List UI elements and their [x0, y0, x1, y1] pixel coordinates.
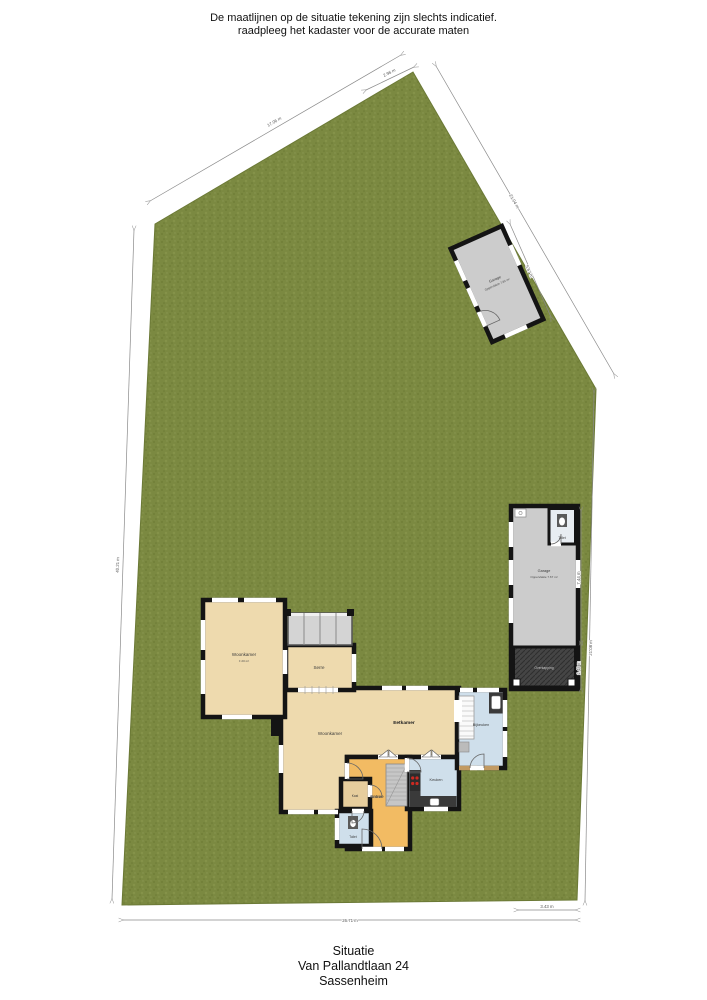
garage-right-window — [509, 560, 514, 585]
window — [503, 731, 508, 757]
stove-burner-icon — [411, 776, 414, 779]
door-opening — [345, 763, 350, 779]
serre-post — [284, 609, 291, 616]
window — [382, 686, 402, 691]
dim-garage2-side: 7.44 m — [576, 571, 581, 585]
woonkamer-label: Woonkamer — [318, 731, 343, 736]
window — [201, 660, 206, 694]
garage-right-label: Garage — [538, 569, 551, 573]
keuken-label: Keuken — [430, 778, 443, 782]
stove-burner-icon — [415, 776, 418, 779]
door-opening — [352, 809, 364, 814]
window — [406, 686, 428, 691]
dim-diag-full: 21.04 m — [508, 193, 520, 209]
window — [222, 715, 252, 720]
toilet-label: Toilet — [349, 835, 357, 839]
dim-top-left: 17.06 m — [266, 115, 282, 127]
dim-overkapping-side: 2.48 m — [576, 661, 581, 675]
kitchen-sink-icon — [430, 799, 439, 806]
dim-right-side: 21.08 m — [588, 640, 593, 656]
woonkamer-nw-sublabel: ± 20 m² — [239, 659, 249, 663]
window — [503, 700, 508, 727]
overkapping-post — [568, 679, 575, 686]
window — [385, 847, 404, 852]
window — [288, 810, 314, 815]
entree-label: Entree — [370, 794, 384, 799]
window — [460, 688, 473, 693]
window — [244, 598, 276, 603]
window — [279, 745, 284, 773]
dim-bottom: 26.71 m — [342, 918, 358, 923]
garage-right-window — [509, 598, 514, 623]
door-opening — [454, 700, 462, 722]
garage-right-sublabel: Oppervlakte 7.67 m² — [530, 575, 557, 579]
dim-left-side: 40.21 m — [115, 557, 121, 573]
garage-toilet-bowl-icon — [559, 518, 565, 526]
title-line1: Situatie — [0, 944, 707, 959]
front-door-opening — [362, 847, 382, 852]
kast-label: Kast — [352, 794, 358, 798]
overkapping-label: Overkapping — [534, 666, 553, 670]
window — [352, 654, 357, 682]
serre-label: Serre — [313, 665, 325, 670]
stove-burner-icon — [411, 782, 414, 785]
title-line2: Van Pallandtlaan 24 — [0, 959, 707, 974]
situatie-page: De maatlijnen op de situatie tekening zi… — [0, 0, 707, 1000]
window — [335, 818, 340, 840]
garage-right-window — [509, 522, 514, 547]
window — [212, 598, 238, 603]
window — [201, 620, 206, 650]
window — [477, 688, 499, 693]
eetkamer-label: Eetkamer — [393, 720, 415, 726]
entree-stairs — [386, 764, 407, 806]
woonkamer-nw-label: Woonkamer — [232, 652, 257, 657]
garage-right: Overkapping Toilet Garage Oppervlakte 7.… — [509, 506, 581, 689]
door-opening — [283, 650, 288, 674]
door-opening — [470, 766, 484, 771]
stove-burner-icon — [415, 782, 418, 785]
window — [318, 810, 338, 815]
bijkeuken-sink-icon — [492, 696, 501, 709]
stove-icon — [410, 774, 421, 791]
door-opening — [405, 758, 410, 772]
dim-bottom-right: 3.43 m — [540, 904, 554, 909]
site-plan-svg: Garage Oppervlakte 7.84 m² Overkapping T… — [0, 0, 707, 1000]
boiler-icon — [515, 509, 526, 517]
serre-post — [347, 609, 354, 616]
bijkeuken-label: Bijkeuken — [473, 723, 489, 727]
title-block: Situatie Van Pallandtlaan 24 Sassenheim — [0, 944, 707, 989]
overkapping-post — [513, 679, 520, 686]
appliance-icon — [459, 742, 469, 752]
serre-threshold — [298, 688, 338, 693]
title-line3: Sassenheim — [0, 974, 707, 989]
toilet-bowl-icon — [350, 820, 356, 827]
window — [424, 807, 448, 812]
